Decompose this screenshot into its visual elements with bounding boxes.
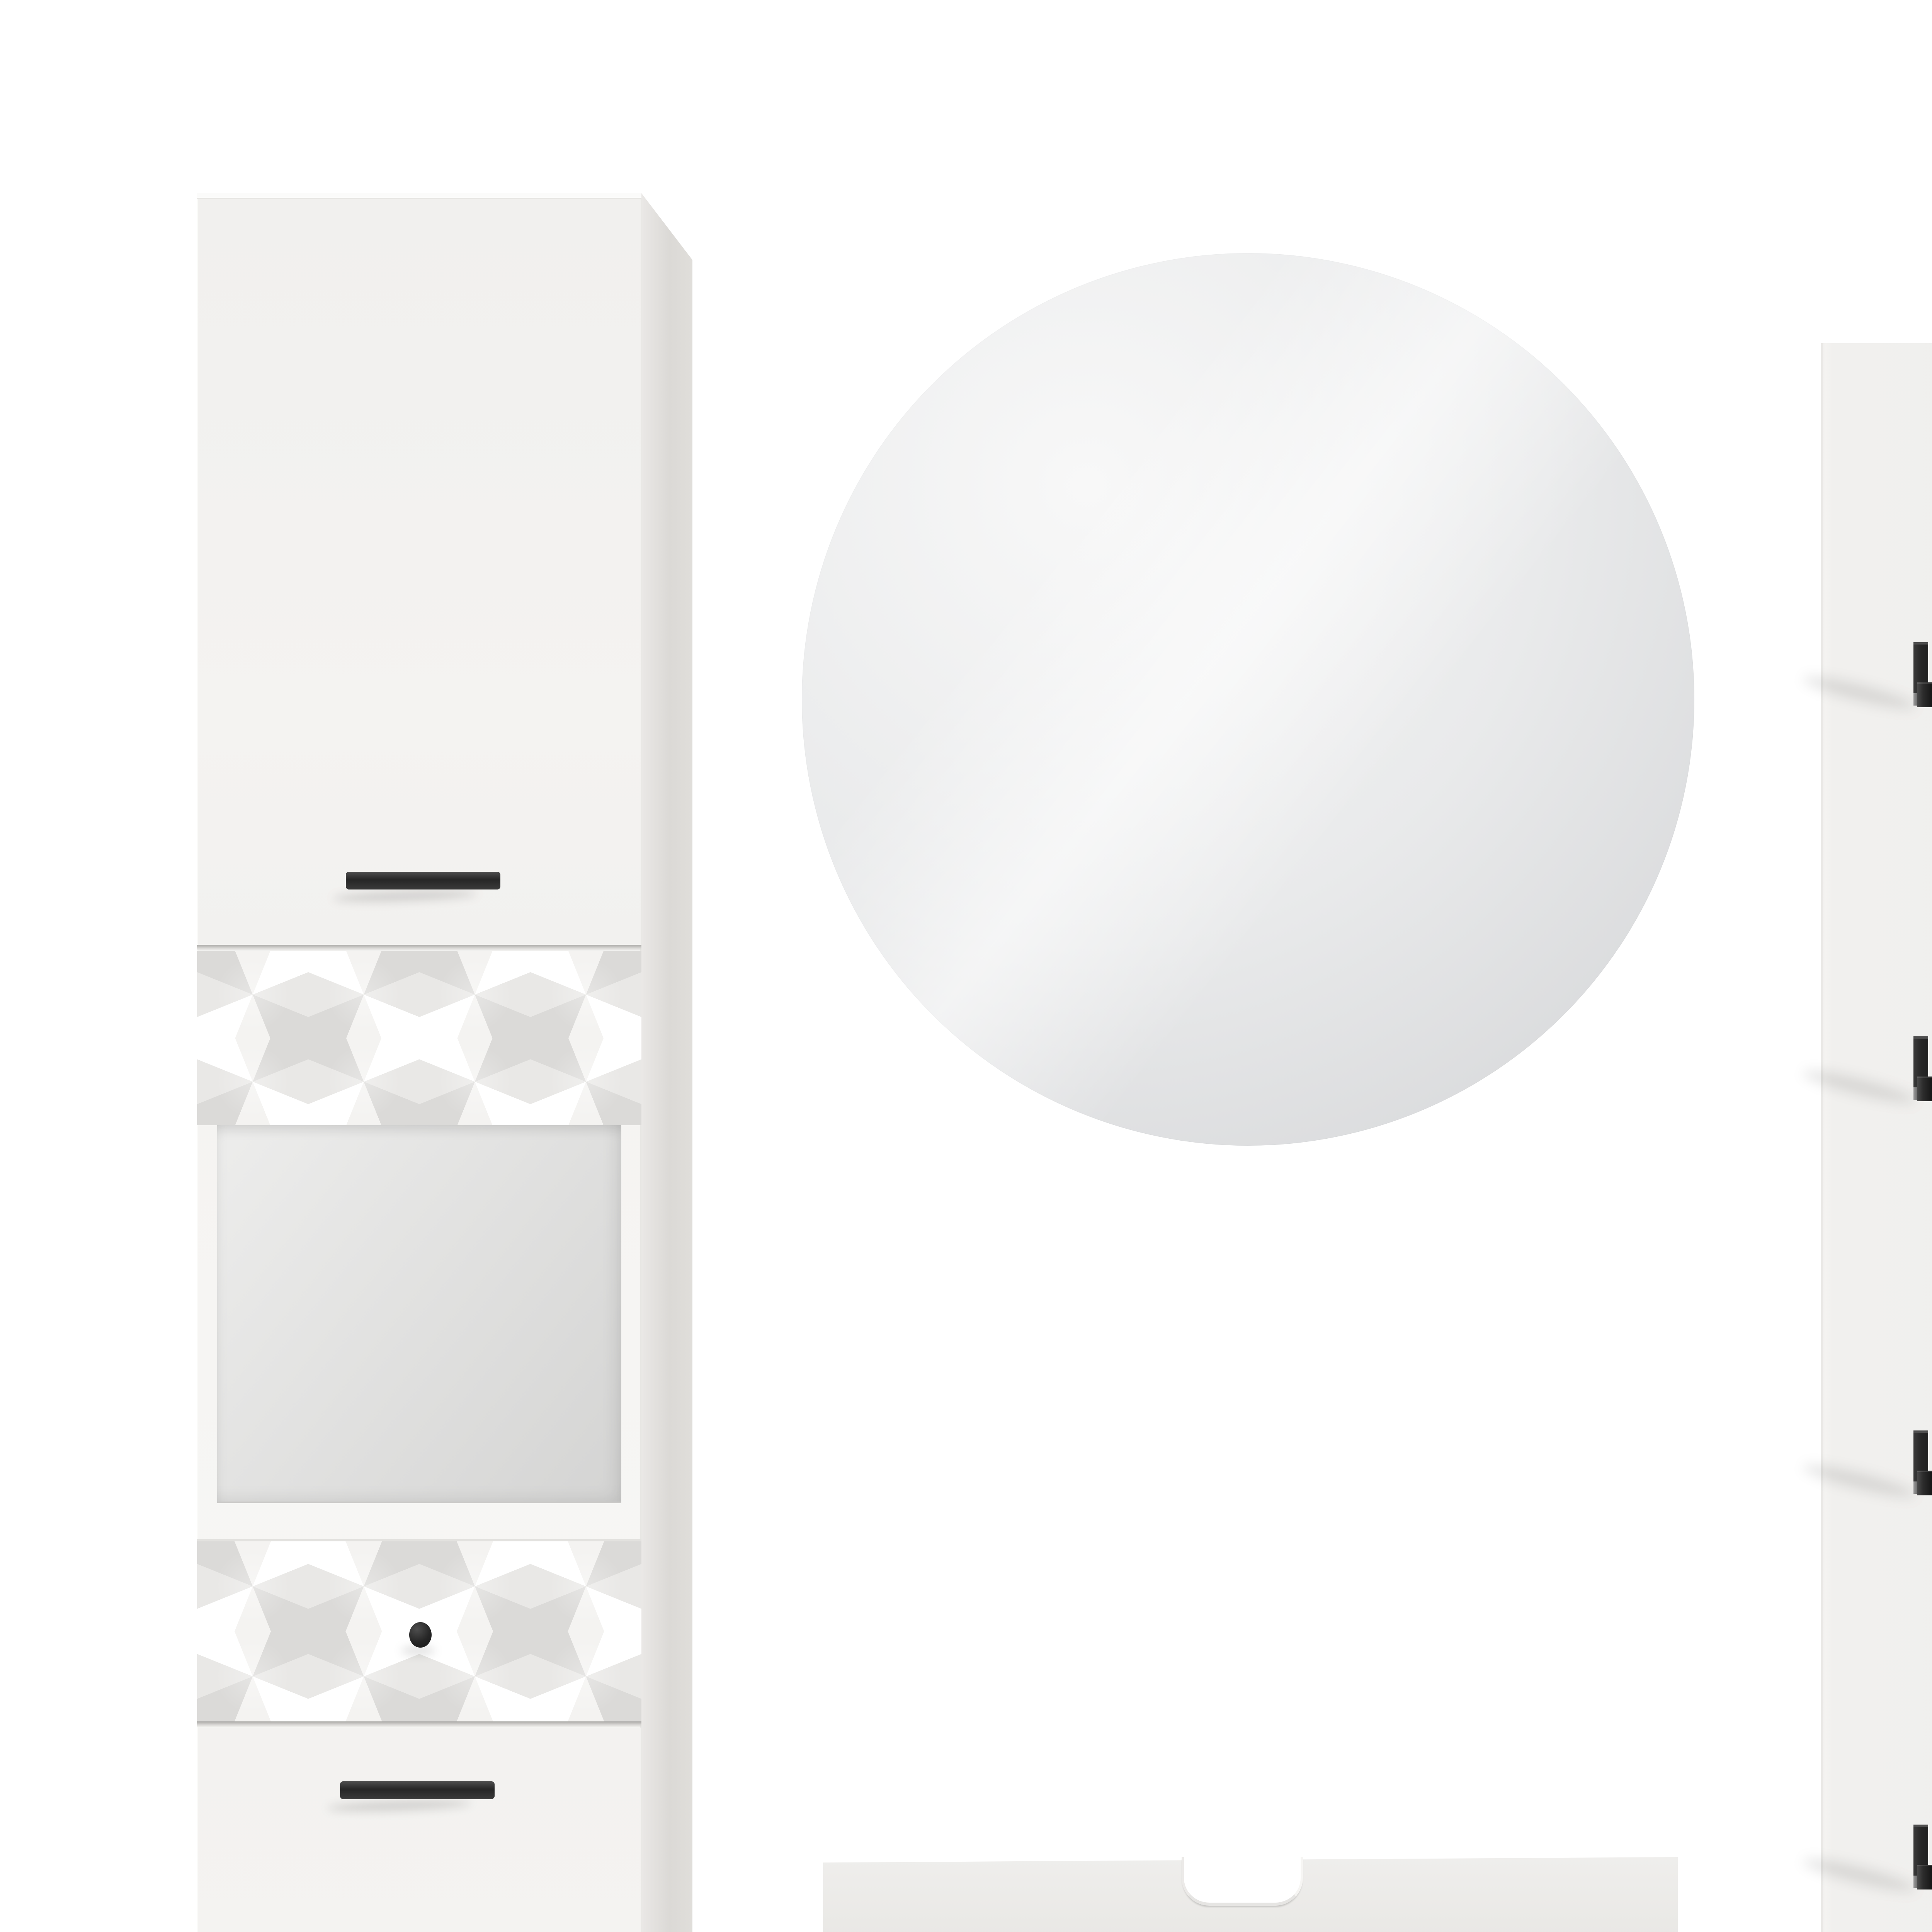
door-seam [197, 945, 641, 951]
drawer-door-seam [197, 1721, 641, 1728]
knob-shadow [401, 1647, 435, 1655]
tall-cabinet-drawer-knob [409, 1622, 432, 1648]
diamond-pattern-strip [197, 951, 641, 1125]
upper-door-handle [346, 872, 500, 889]
facet-cell [308, 1541, 420, 1631]
facet-cell [419, 1038, 531, 1126]
facet-cell [531, 1541, 642, 1631]
facet-cell [531, 1038, 642, 1126]
hook-lip [1917, 1865, 1932, 1889]
hook-shadow [1801, 1065, 1918, 1109]
facet-cell [308, 1631, 420, 1721]
hook-lip [1917, 682, 1932, 707]
lower-door-handle [340, 1781, 495, 1799]
tall-cabinet-lower-door [198, 1728, 641, 1932]
shelf-edge-line [217, 1502, 621, 1503]
hook-lip [1917, 1077, 1932, 1101]
hook-shadow [1801, 1459, 1918, 1503]
facet-cell [197, 951, 308, 1038]
open-shelf-niche [217, 1125, 621, 1502]
sink-pipe-cutout [1182, 1857, 1303, 1906]
facet-cell [308, 951, 420, 1038]
tall-cabinet-side-panel [641, 193, 692, 1932]
facet-cell [419, 951, 531, 1038]
coat-hook [1797, 1822, 1932, 1911]
tall-cabinet-upper-door [198, 199, 641, 945]
coat-hook [1797, 640, 1932, 729]
hook-shadow [1801, 671, 1918, 714]
tall-cabinet-top-edge [197, 193, 641, 199]
product-photo-stage [0, 0, 1932, 1932]
facet-cell [531, 1631, 642, 1721]
facet-cell [419, 1631, 531, 1721]
facet-cell [197, 1541, 308, 1631]
coat-hook [1797, 1034, 1932, 1123]
coat-hook [1797, 1428, 1932, 1517]
facet-cell [308, 1038, 420, 1126]
facet-cell [419, 1541, 531, 1631]
hook-shadow [1801, 1853, 1918, 1897]
facet-cell [197, 1631, 308, 1721]
wall-hook-panel [1821, 343, 1932, 1932]
facet-cell [197, 1038, 308, 1126]
facet-cell [531, 951, 642, 1038]
round-mirror [802, 253, 1694, 1146]
hook-lip [1917, 1471, 1932, 1495]
